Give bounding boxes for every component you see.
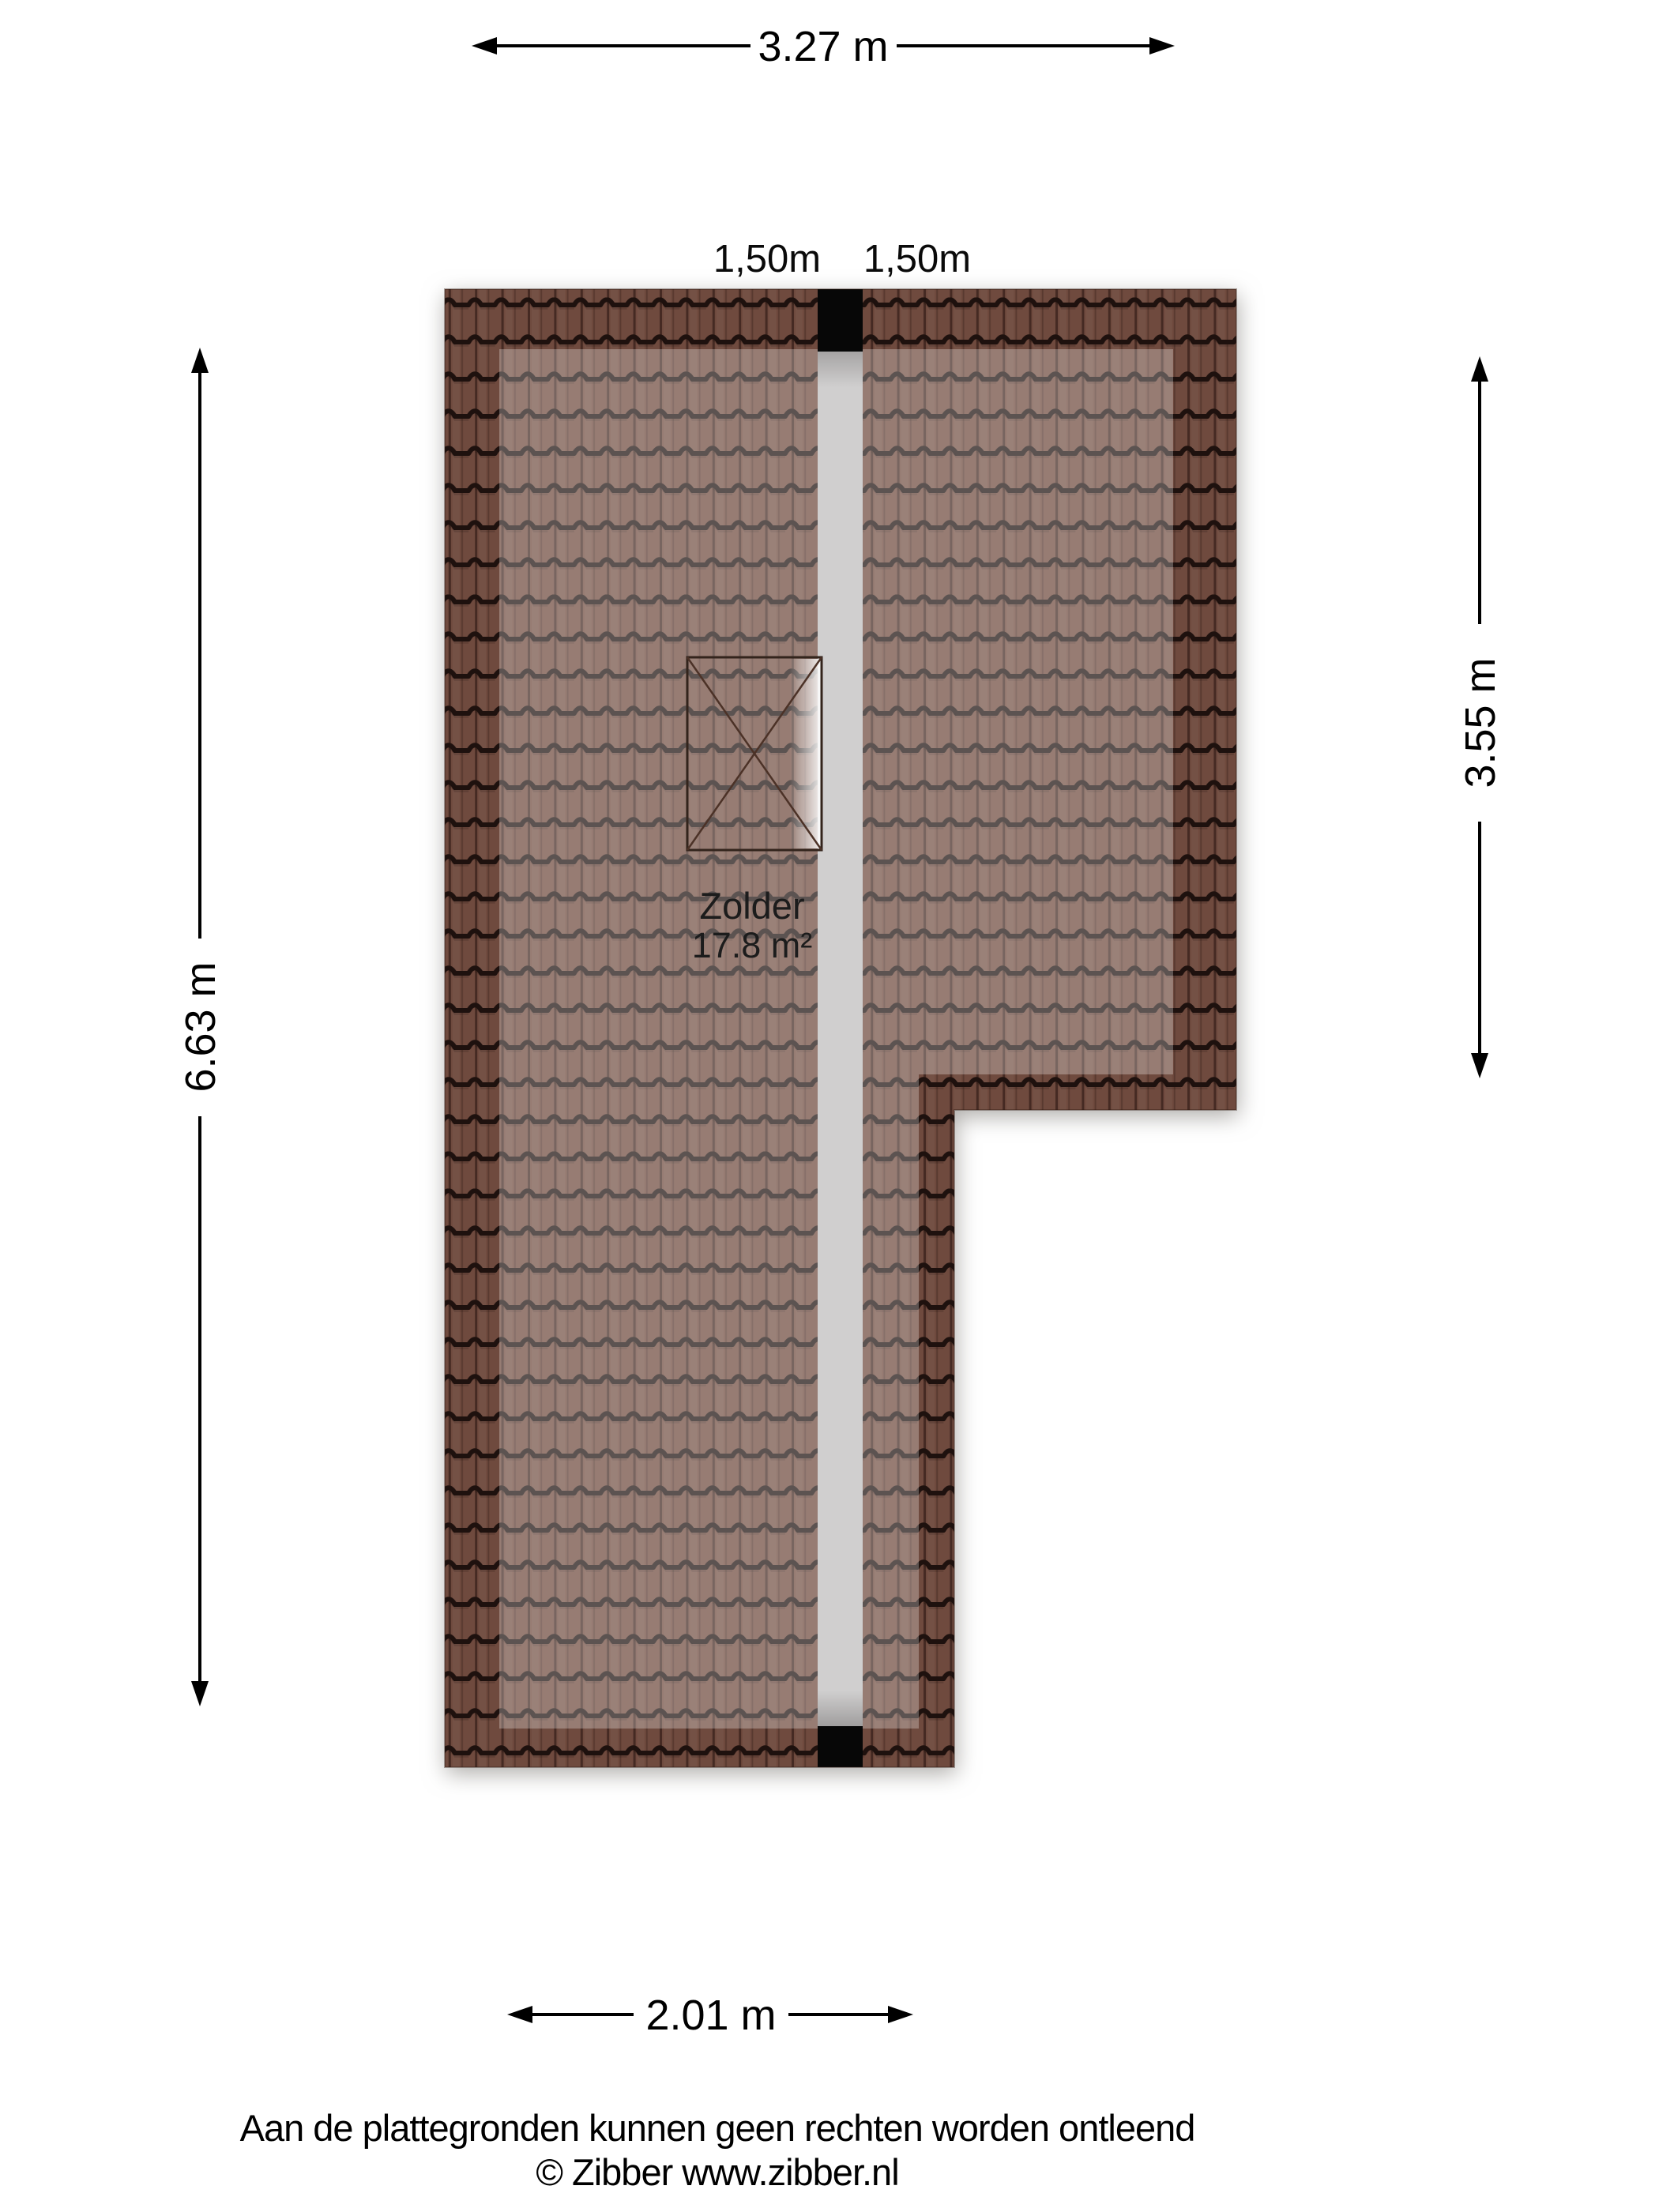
roof-plan <box>445 289 1236 1767</box>
arrow-right-icon <box>1149 37 1175 55</box>
floor-plan-page: Zolder 17.8 m² 1,50m 1,50m 3.27 m 6.63 m <box>0 0 1659 2212</box>
ridge-walkway <box>818 289 863 1767</box>
arrow-left-icon <box>507 2006 532 2023</box>
dimension-label-bottom: 2.01 m <box>645 1992 776 2039</box>
ridge-walkway-top-shade <box>818 352 863 387</box>
arrow-left-icon <box>472 37 497 55</box>
chimney-block-top <box>818 289 863 352</box>
dimension-bottom: 2.01 m <box>507 1992 913 2039</box>
dimension-right: 3.55 m <box>1457 356 1504 1078</box>
headroom-label-left: 1,50m <box>713 238 821 280</box>
headroom-label-right: 1,50m <box>863 238 971 280</box>
chimney-block-bottom <box>818 1726 863 1767</box>
floor-plan-canvas: Zolder 17.8 m² 1,50m 1,50m 3.27 m 6.63 m <box>0 0 1659 2212</box>
dimension-top: 3.27 m <box>472 23 1175 70</box>
footer-disclaimer: Aan de plattegronden kunnen geen rechten… <box>240 2107 1195 2149</box>
room-label: Zolder <box>699 885 804 927</box>
arrow-up-icon <box>191 348 209 373</box>
dimension-label-left: 6.63 m <box>177 961 224 1092</box>
arrow-right-icon <box>888 2006 913 2023</box>
dimension-label-right: 3.55 m <box>1457 657 1504 788</box>
room-area-label: 17.8 m² <box>692 925 813 965</box>
ridge-walkway-bottom-shade <box>818 1691 863 1726</box>
arrow-down-icon <box>191 1681 209 1706</box>
arrow-down-icon <box>1471 1053 1488 1078</box>
roof-window-glint <box>790 659 822 848</box>
dimension-label-top: 3.27 m <box>758 23 888 70</box>
footer-copyright: © Zibber www.zibber.nl <box>536 2151 898 2193</box>
dimension-left: 6.63 m <box>177 348 224 1706</box>
arrow-up-icon <box>1471 356 1488 382</box>
